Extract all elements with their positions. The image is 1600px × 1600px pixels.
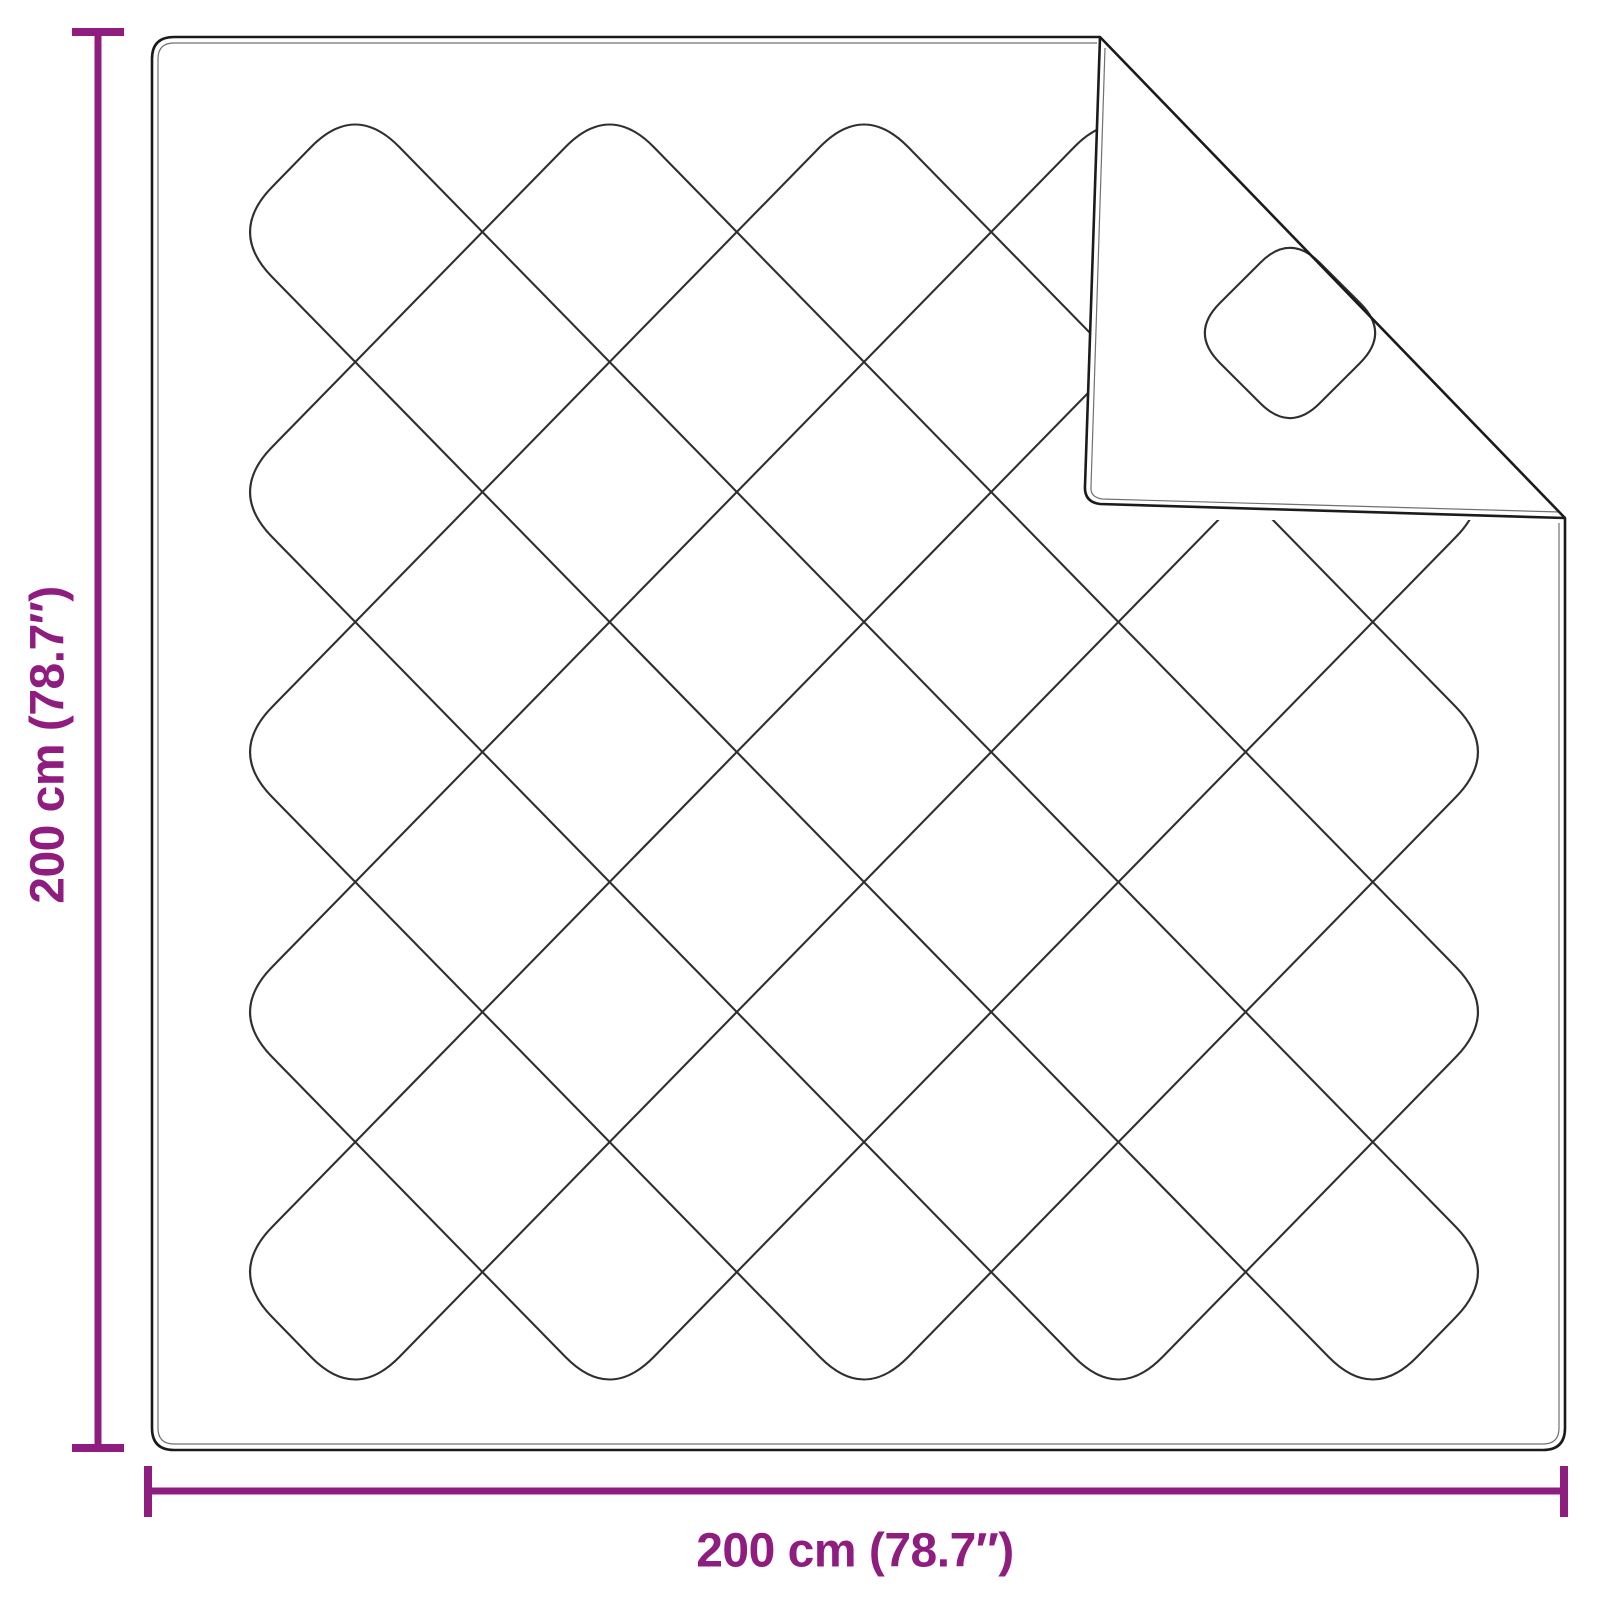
fold-flap bbox=[1085, 37, 1565, 518]
blanket bbox=[152, 37, 1565, 1450]
bottom-dimension: 200 cm (78.7″) bbox=[148, 1466, 1564, 1578]
fold-flap-fill bbox=[1085, 37, 1565, 518]
bottom-dimension-label: 200 cm (78.7″) bbox=[696, 1525, 1014, 1578]
diagram-canvas: 200 cm (78.7″) 200 cm (78.7″) bbox=[0, 0, 1600, 1600]
left-dimension: 200 cm (78.7″) bbox=[22, 32, 125, 1448]
blanket-fill bbox=[152, 37, 1565, 1450]
left-dimension-label: 200 cm (78.7″) bbox=[22, 586, 75, 904]
dimension-diagram: 200 cm (78.7″) 200 cm (78.7″) bbox=[0, 0, 1600, 1600]
